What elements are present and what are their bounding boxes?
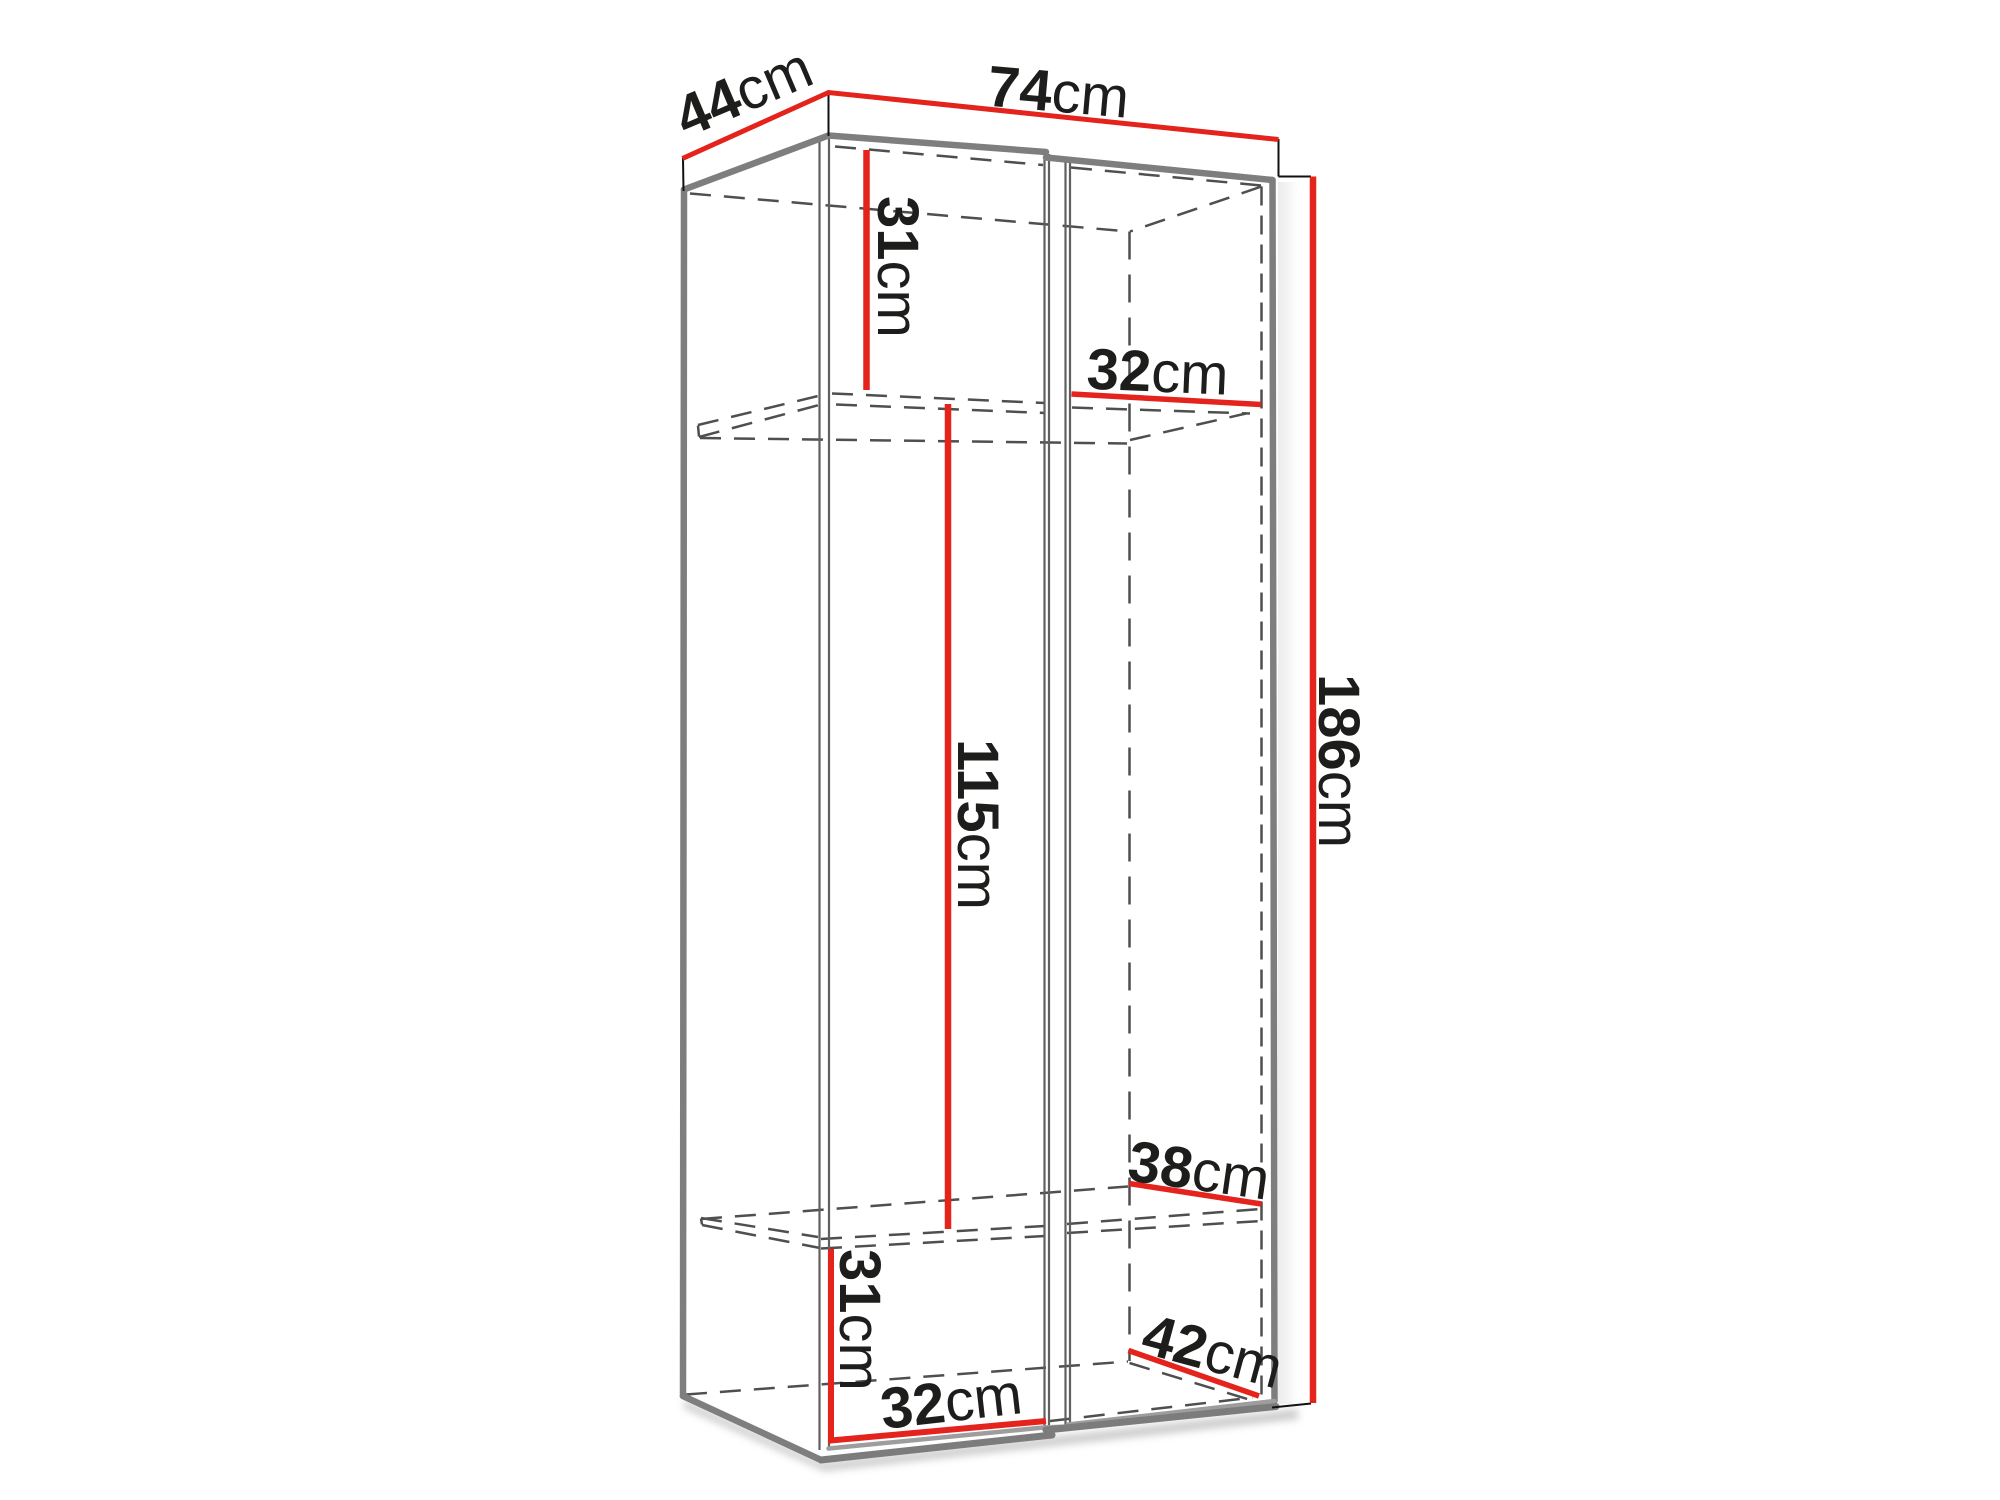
svg-text:32cm: 32cm (1085, 337, 1230, 408)
svg-text:31cm: 31cm (865, 196, 930, 338)
svg-text:31cm: 31cm (827, 1249, 892, 1391)
svg-text:74cm: 74cm (985, 54, 1132, 131)
svg-text:186cm: 186cm (1306, 674, 1371, 848)
svg-text:115cm: 115cm (945, 739, 1010, 910)
